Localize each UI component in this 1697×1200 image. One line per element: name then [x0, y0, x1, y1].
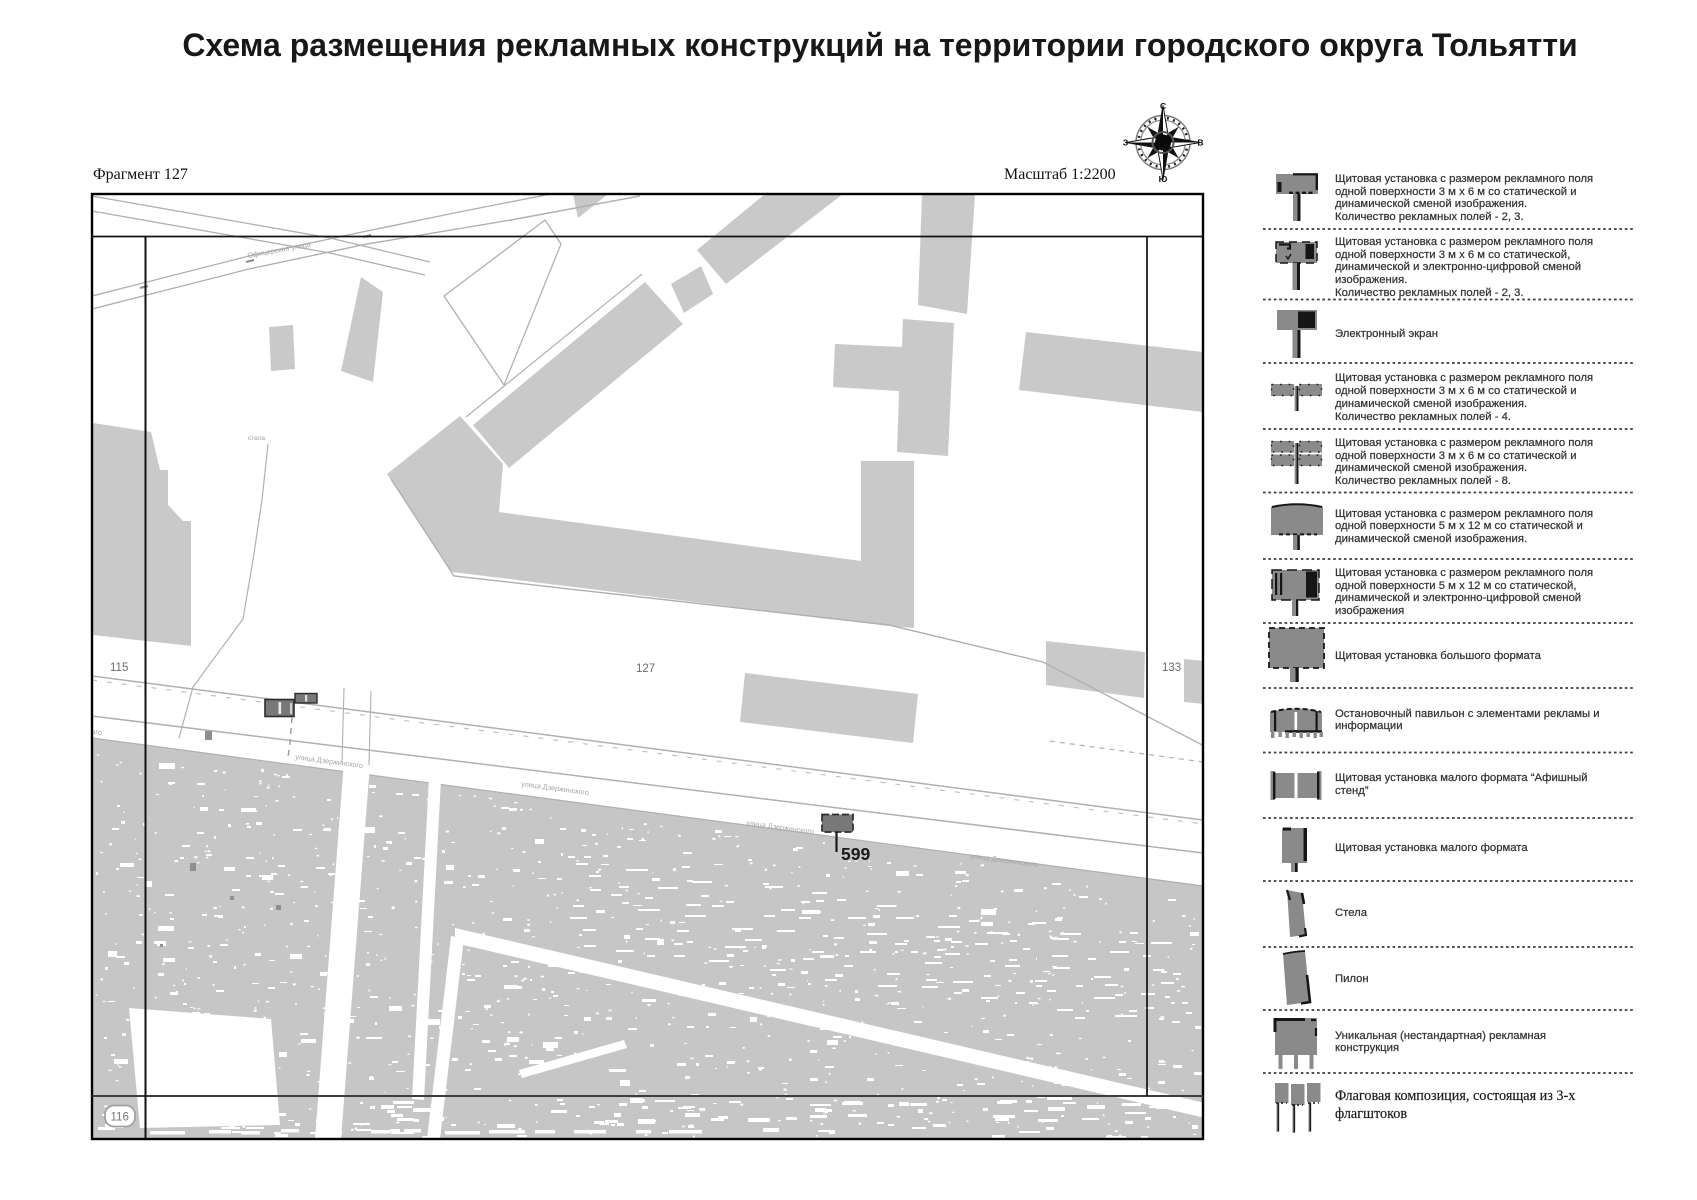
- svg-text:З: З: [1123, 138, 1128, 148]
- svg-text:С: С: [1160, 101, 1166, 111]
- svg-text:Ю: Ю: [1159, 174, 1168, 184]
- svg-text:В: В: [1197, 138, 1203, 148]
